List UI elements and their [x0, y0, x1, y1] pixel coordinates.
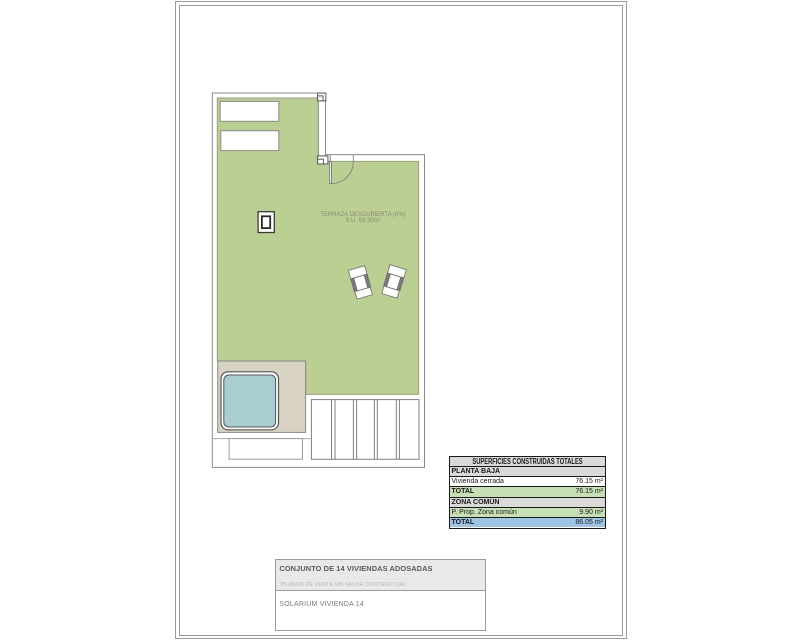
svg-text:S.U. 69.30m²: S.U. 69.30m²: [345, 218, 380, 224]
svg-text:TERRAZA DESCUBIERTA (0%): TERRAZA DESCUBIERTA (0%): [320, 212, 405, 218]
